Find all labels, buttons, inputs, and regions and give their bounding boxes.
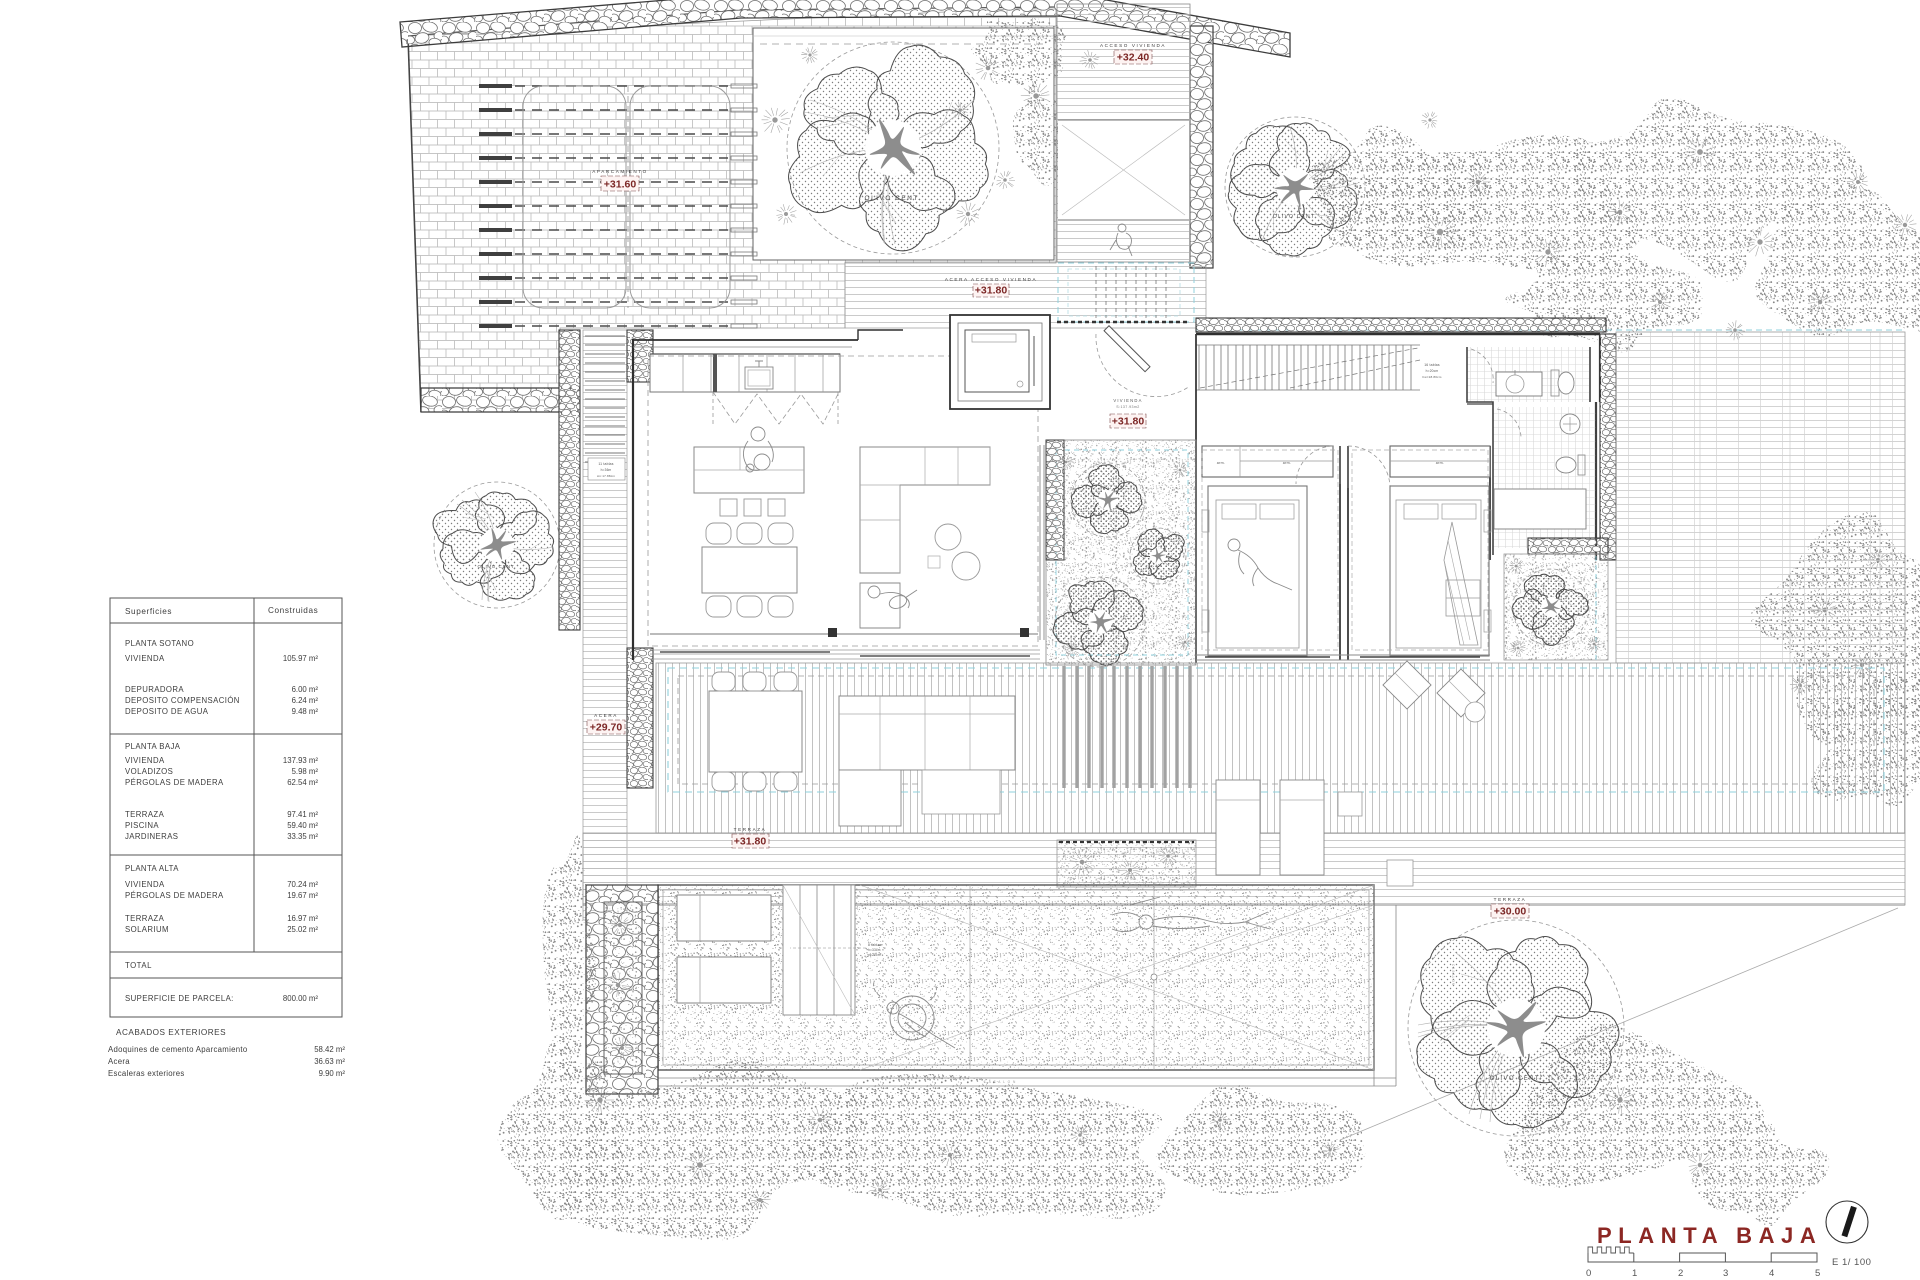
svg-text:TERRAZA: TERRAZA xyxy=(125,914,165,923)
svg-text:DEPOSITO DE AGUA: DEPOSITO DE AGUA xyxy=(125,707,209,716)
svg-text:DEPOSITO COMPENSACIÓN: DEPOSITO COMPENSACIÓN xyxy=(125,696,240,705)
svg-text:PÉRGOLAS DE MADERA: PÉRGOLAS DE MADERA xyxy=(125,778,224,787)
svg-text:6.24 m²: 6.24 m² xyxy=(292,696,319,705)
svg-text:arm.: arm. xyxy=(1436,461,1444,465)
svg-text:SOLARIUM: SOLARIUM xyxy=(125,925,169,934)
svg-text:PLANTA BAJA: PLANTA BAJA xyxy=(1597,1223,1822,1248)
svg-text:TERRAZA: TERRAZA xyxy=(125,810,165,819)
svg-text:h=36m: h=36m xyxy=(601,468,612,472)
svg-text:PLANTA SOTANO: PLANTA SOTANO xyxy=(125,639,194,648)
svg-text:Adoquines de cemento Aparcamie: Adoquines de cemento Aparcamiento xyxy=(108,1045,248,1054)
svg-text:ACERA: ACERA xyxy=(594,713,618,718)
svg-text:105.97 m²: 105.97 m² xyxy=(283,654,319,663)
svg-text:TOTAL: TOTAL xyxy=(125,961,152,970)
svg-text:TERRAZA: TERRAZA xyxy=(734,827,767,832)
svg-text:OLIVO CENT.: OLIVO CENT. xyxy=(865,195,922,202)
svg-text:16 tablas: 16 tablas xyxy=(1424,363,1440,367)
svg-text:Construidas: Construidas xyxy=(268,606,318,615)
svg-text:137.93 m²: 137.93 m² xyxy=(283,756,319,765)
svg-text:5.98 m²: 5.98 m² xyxy=(292,767,319,776)
svg-text:VIVIENDA: VIVIENDA xyxy=(125,654,165,663)
svg-text:3: 3 xyxy=(1723,1268,1728,1279)
svg-text:0: 0 xyxy=(1586,1268,1591,1279)
svg-text:PLANTA BAJA: PLANTA BAJA xyxy=(125,742,181,751)
svg-text:h=20cm: h=20cm xyxy=(1426,369,1439,373)
svg-text:4: 4 xyxy=(1769,1268,1774,1279)
svg-text:11 tablas: 11 tablas xyxy=(598,462,613,466)
svg-text:+31.60: +31.60 xyxy=(604,179,637,191)
svg-text:Escaleras exteriores: Escaleras exteriores xyxy=(108,1069,185,1078)
svg-text:p=20cm: p=20cm xyxy=(868,953,881,957)
svg-text:800.00 m²: 800.00 m² xyxy=(283,994,319,1003)
svg-text:+31.80: +31.80 xyxy=(975,285,1008,297)
svg-text:PLANTA ALTA: PLANTA ALTA xyxy=(125,864,179,873)
svg-text:8 tablas: 8 tablas xyxy=(868,943,882,947)
svg-text:+32.40: +32.40 xyxy=(1117,52,1150,64)
svg-text:VIVIENDA: VIVIENDA xyxy=(125,756,165,765)
svg-text:hw=18.80cm: hw=18.80cm xyxy=(1422,375,1441,379)
svg-text:VOLADIZOS: VOLADIZOS xyxy=(125,767,173,776)
svg-text:arm.: arm. xyxy=(1217,461,1225,465)
svg-text:2: 2 xyxy=(1678,1268,1683,1279)
svg-text:VIVIENDA: VIVIENDA xyxy=(1113,398,1142,403)
svg-text:TERRAZA: TERRAZA xyxy=(1494,897,1527,902)
svg-text:OLIVO CENT.: OLIVO CENT. xyxy=(1273,214,1317,220)
svg-text:33.35 m²: 33.35 m² xyxy=(287,832,318,841)
svg-text:OLIVO CENT.: OLIVO CENT. xyxy=(1490,1076,1543,1082)
svg-text:16.97 m²: 16.97 m² xyxy=(287,914,318,923)
svg-text:SUPERFICIE DE PARCELA:: SUPERFICIE DE PARCELA: xyxy=(125,994,234,1003)
svg-text:59.40 m²: 59.40 m² xyxy=(287,821,318,830)
svg-text:19.67 m²: 19.67 m² xyxy=(287,891,318,900)
svg-text:cm:17.88cm: cm:17.88cm xyxy=(597,474,616,478)
svg-text:25.02 m²: 25.02 m² xyxy=(287,925,318,934)
svg-text:58.42 m²: 58.42 m² xyxy=(314,1045,345,1054)
svg-text:6.00 m²: 6.00 m² xyxy=(292,685,319,694)
svg-text:S:137.93m2: S:137.93m2 xyxy=(1116,405,1139,409)
svg-text:+29.70: +29.70 xyxy=(590,722,623,734)
svg-text:ACCESO VIVIENDA: ACCESO VIVIENDA xyxy=(1100,43,1166,48)
svg-text:5: 5 xyxy=(1815,1268,1820,1279)
svg-text:Superficies: Superficies xyxy=(125,607,172,616)
svg-text:97.41 m²: 97.41 m² xyxy=(287,810,318,819)
svg-text:36.63 m²: 36.63 m² xyxy=(314,1057,345,1066)
svg-text:JARDINERAS: JARDINERAS xyxy=(125,832,178,841)
svg-text:OLIVO CENT.: OLIVO CENT. xyxy=(477,564,516,569)
svg-text:E 1/ 100: E 1/ 100 xyxy=(1832,1257,1871,1268)
svg-text:+31.80: +31.80 xyxy=(734,836,767,848)
svg-text:h=33cm: h=33cm xyxy=(868,948,881,952)
svg-text:ACERA ACCESO VIVIENDA: ACERA ACCESO VIVIENDA xyxy=(945,277,1037,282)
svg-text:DEPURADORA: DEPURADORA xyxy=(125,685,184,694)
svg-text:arm.: arm. xyxy=(1283,461,1291,465)
svg-text:Acera: Acera xyxy=(108,1057,130,1066)
svg-text:ACABADOS EXTERIORES: ACABADOS EXTERIORES xyxy=(116,1028,226,1037)
svg-text:62.54 m²: 62.54 m² xyxy=(287,778,318,787)
svg-text:1: 1 xyxy=(1632,1268,1637,1279)
svg-text:9.48 m²: 9.48 m² xyxy=(292,707,319,716)
svg-text:+31.80: +31.80 xyxy=(1112,416,1145,428)
svg-text:9.90 m²: 9.90 m² xyxy=(319,1069,346,1078)
svg-text:+30.00: +30.00 xyxy=(1494,906,1527,918)
svg-text:VIVIENDA: VIVIENDA xyxy=(125,880,165,889)
svg-text:APARCAMIENTO: APARCAMIENTO xyxy=(592,169,648,174)
svg-text:PÉRGOLAS DE MADERA: PÉRGOLAS DE MADERA xyxy=(125,891,224,900)
svg-text:70.24 m²: 70.24 m² xyxy=(287,880,318,889)
svg-text:PISCINA: PISCINA xyxy=(125,821,159,830)
